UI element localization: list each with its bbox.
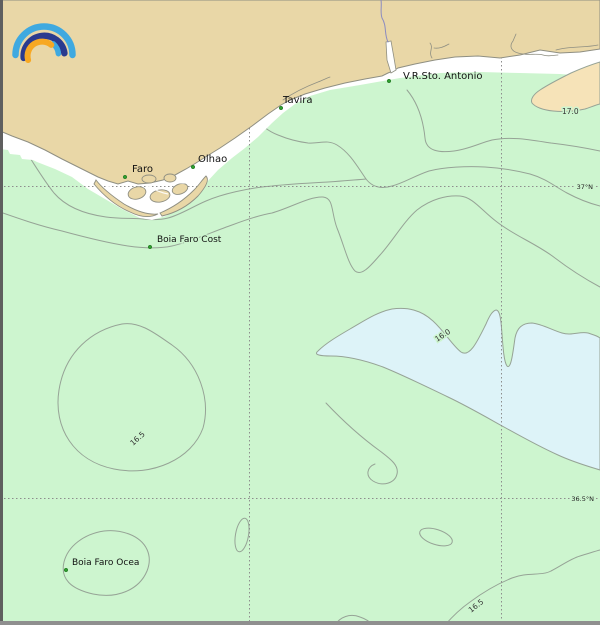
map-frame-bottom: [0, 621, 600, 625]
lagoon-island: [142, 175, 156, 183]
isotherm-label-17-0: 17.0: [562, 107, 579, 116]
olhao-label[interactable]: Olhao: [198, 154, 227, 165]
map-frame-left: [0, 0, 3, 625]
buoy-faro-cost-label[interactable]: Boia Faro Cost: [157, 235, 222, 245]
faro-label[interactable]: Faro: [132, 164, 153, 175]
faro-marker[interactable]: [123, 175, 127, 179]
vrsa-label[interactable]: V.R.Sto. Antonio: [403, 71, 483, 82]
buoy-faro-ocea-label[interactable]: Boia Faro Ocea: [72, 558, 139, 568]
buoy-faro-ocea-marker[interactable]: [64, 568, 68, 572]
tavira-label[interactable]: Tavira: [282, 95, 313, 106]
lagoon-island: [164, 174, 176, 182]
vrsa-marker[interactable]: [387, 79, 391, 83]
latitude-label-37n: 37°N: [577, 183, 594, 191]
olhao-marker[interactable]: [191, 165, 195, 169]
map-canvas[interactable]: Faro Olhao Tavira V.R.Sto. Antonio Boia …: [0, 0, 600, 625]
latitude-label-36-5n: 36.5°N: [571, 495, 594, 503]
tavira-marker[interactable]: [279, 106, 283, 110]
buoy-faro-cost-marker[interactable]: [148, 245, 152, 249]
